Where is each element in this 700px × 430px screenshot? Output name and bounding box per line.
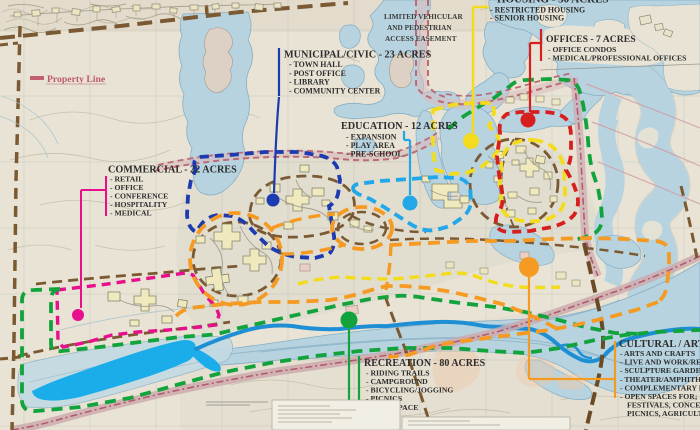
svg-text:AND PEDESTRIAN: AND PEDESTRIAN xyxy=(387,23,452,32)
svg-text:- POST OFFICE: - POST OFFICE xyxy=(289,69,346,78)
svg-text:- MEDICAL/PROFESSIONAL OFFICES: - MEDICAL/PROFESSIONAL OFFICES xyxy=(548,54,686,63)
svg-text:Property Line: Property Line xyxy=(47,74,106,85)
svg-text:PICNICS, AGRICULTURE: PICNICS, AGRICULTURE xyxy=(627,409,700,418)
svg-text:ACCESS EASEMENT: ACCESS EASEMENT xyxy=(385,34,457,43)
svg-text:LIMITED VEHICULAR: LIMITED VEHICULAR xyxy=(384,12,463,21)
svg-text:- COMMUNITY CENTER: - COMMUNITY CENTER xyxy=(289,86,381,95)
svg-text:RECREATION - 80 ACRES: RECREATION - 80 ACRES xyxy=(364,358,486,369)
svg-text:- SENIOR HOUSING: - SENIOR HOUSING xyxy=(490,14,564,23)
svg-text:EDUCATION - 12 ACRES: EDUCATION - 12 ACRES xyxy=(341,121,458,132)
svg-text:OFFICES - 7 ACRES: OFFICES - 7 ACRES xyxy=(546,34,636,45)
svg-text:MUNICIPAL/CIVIC - 23 ACRES: MUNICIPAL/CIVIC - 23 ACRES xyxy=(284,50,432,61)
svg-text:- TOWN HALL: - TOWN HALL xyxy=(289,60,343,69)
svg-text:- MEDICAL: - MEDICAL xyxy=(110,209,152,218)
svg-text:- LIBRARY: - LIBRARY xyxy=(289,78,330,87)
svg-text:- PRE-SCHOOL: - PRE-SCHOOL xyxy=(346,150,403,159)
